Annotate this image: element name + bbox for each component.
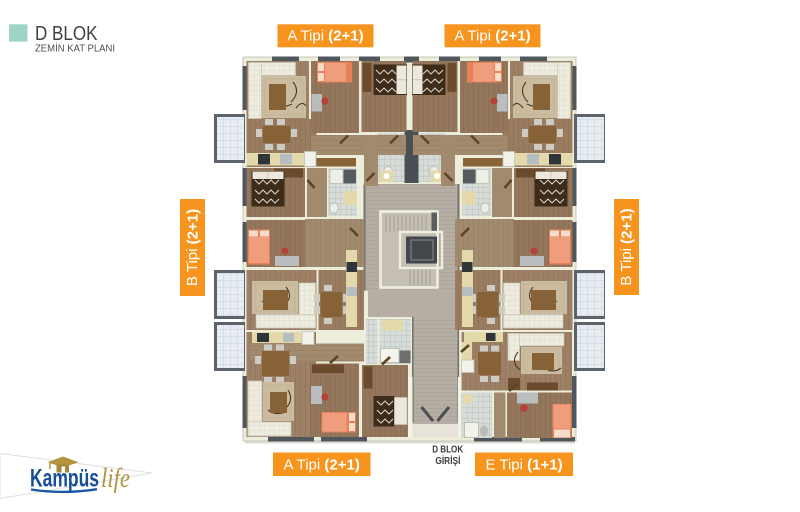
svg-text:A Tipi (2+1): A Tipi (2+1) [454,28,530,45]
svg-text:ZEMİN KAT PLANI: ZEMİN KAT PLANI [35,42,115,55]
svg-text:A Tipi (2+1): A Tipi (2+1) [287,28,363,45]
svg-text:B Tipi (2+1): B Tipi (2+1) [184,209,201,286]
svg-text:D BLOK: D BLOK [35,22,98,45]
svg-text:B Tipi (2+1): B Tipi (2+1) [618,208,635,285]
svg-text:life: life [101,463,130,493]
svg-text:E Tipi (1+1): E Tipi (1+1) [485,456,562,473]
svg-text:Kampüs: Kampüs [30,465,99,493]
svg-text:D BLOK: D BLOK [432,444,463,456]
svg-text:GİRİŞİ: GİRİŞİ [435,454,460,467]
svg-text:A Tipi (2+1): A Tipi (2+1) [284,456,360,473]
